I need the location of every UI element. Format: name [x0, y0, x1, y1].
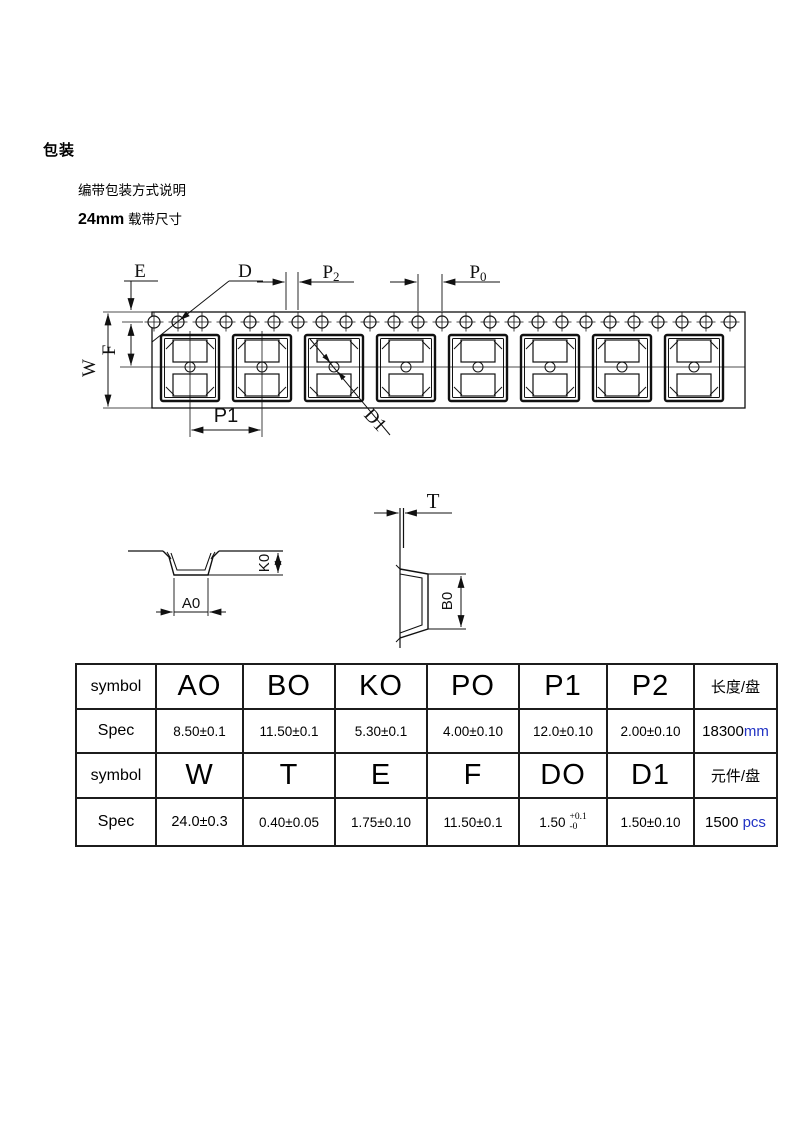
dim-D: D	[152, 261, 263, 342]
label-D: D	[238, 261, 252, 282]
spec-F: 11.50±0.1	[427, 798, 519, 846]
spec-AO: 8.50±0.1	[156, 709, 243, 753]
length-unit: mm	[744, 723, 769, 740]
dim-P0: P0	[390, 262, 500, 311]
symbol-P2: P2	[607, 664, 694, 709]
symbol-W: W	[156, 753, 243, 798]
spec-DO: 1.50+0.1-0	[519, 798, 607, 846]
section-A0-K0: K0 A0	[128, 551, 283, 616]
symbol-PO: PO	[427, 664, 519, 709]
datasheet-page: 包装 编带包装方式说明 24mm 载带尺寸	[0, 0, 794, 1123]
subtitle-tape-size: 24mm 载带尺寸	[78, 208, 182, 229]
header-length-per-reel: 长度/盘	[694, 664, 777, 709]
qty-unit: pcs	[743, 814, 766, 831]
label-P1: P1	[214, 405, 238, 427]
label-K0: K0	[256, 554, 273, 572]
label-T: T	[427, 489, 440, 513]
sprocket-hole-row	[145, 313, 740, 332]
do-lower-tol: -0	[570, 822, 587, 832]
spec-row-label: Spec	[76, 709, 156, 753]
label-F: F	[99, 345, 120, 356]
spec-KO: 5.30±0.1	[335, 709, 427, 753]
spec-P1: 12.0±0.10	[519, 709, 607, 753]
spec-row-label-2: Spec	[76, 798, 156, 846]
symbol-KO: KO	[335, 664, 427, 709]
subtitle-tape-packing: 编带包装方式说明	[78, 179, 186, 199]
spec-PO: 4.00±0.10	[427, 709, 519, 753]
spec-W: 24.0±0.3	[156, 798, 243, 846]
page-title: 包装	[43, 139, 75, 160]
header-parts-per-reel: 元件/盘	[694, 753, 777, 798]
symbol-F: F	[427, 753, 519, 798]
spec-T: 0.40±0.05	[243, 798, 335, 846]
dim-W: W	[79, 312, 152, 408]
dim-P2: P2	[257, 262, 354, 310]
symbol-T: T	[243, 753, 335, 798]
label-A0: A0	[182, 595, 200, 612]
symbol-E: E	[335, 753, 427, 798]
symbol-AO: AO	[156, 664, 243, 709]
symbol-P1: P1	[519, 664, 607, 709]
spec-BO: 11.50±0.1	[243, 709, 335, 753]
label-D1: D1	[359, 405, 390, 436]
do-base: 1.50	[539, 815, 565, 830]
tape-size-text: 载带尺寸	[124, 212, 182, 227]
length-number: 18300	[702, 723, 744, 740]
dim-F: F	[99, 324, 131, 366]
label-E: E	[134, 261, 146, 282]
pocket-row	[161, 335, 723, 401]
section-T-B0: T B0	[374, 489, 466, 648]
value-length-per-reel: 18300mm	[694, 709, 777, 753]
symbol-row-label-2: symbol	[76, 753, 156, 798]
spec-E: 1.75±0.10	[335, 798, 427, 846]
value-parts-per-reel: 1500 pcs	[694, 798, 777, 846]
label-P2: P2	[322, 262, 339, 284]
carrier-tape-drawing: W E F D P2	[0, 250, 794, 660]
tape-spec-table: symbol AO BO KO PO P1 P2 长度/盘 Spec 8.50±…	[75, 663, 778, 847]
symbol-row-label: symbol	[76, 664, 156, 709]
dim-P1: P1	[192, 405, 261, 430]
label-P0: P0	[469, 262, 486, 284]
symbol-D1: D1	[607, 753, 694, 798]
qty-number: 1500	[705, 814, 738, 831]
label-B0: B0	[439, 592, 456, 610]
symbol-DO: DO	[519, 753, 607, 798]
tape-width-text: 24mm	[78, 211, 124, 228]
spec-P2: 2.00±0.10	[607, 709, 694, 753]
do-upper-tol: +0.1	[570, 812, 587, 822]
label-W: W	[79, 359, 100, 377]
spec-D1: 1.50±0.10	[607, 798, 694, 846]
symbol-BO: BO	[243, 664, 335, 709]
